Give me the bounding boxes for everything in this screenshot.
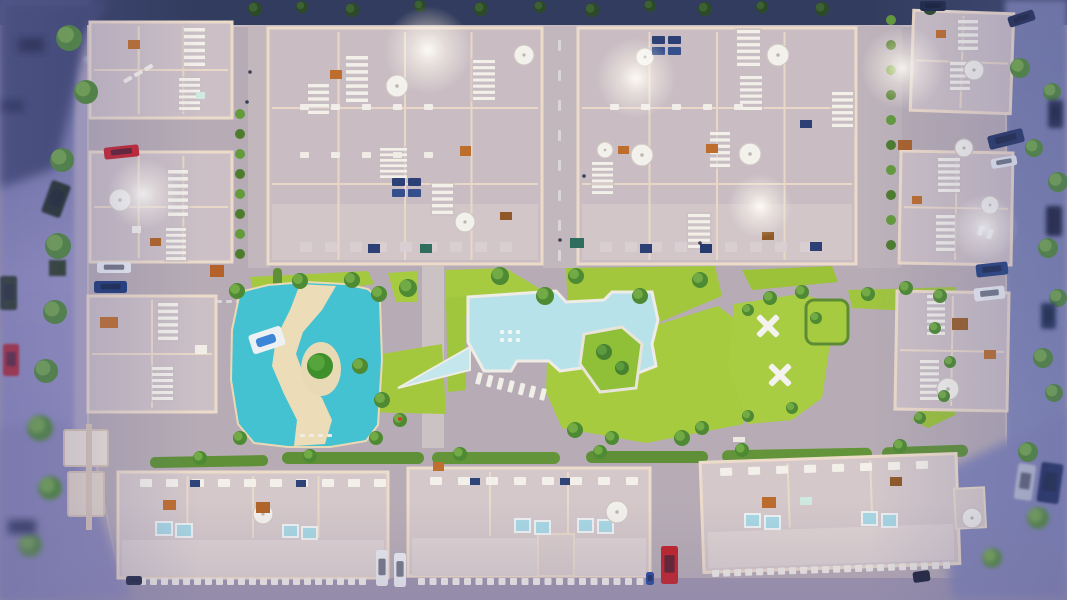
- road-tree: [815, 2, 829, 16]
- terrace-pool: [420, 244, 432, 253]
- park-tree: [374, 392, 390, 408]
- road-tree: [345, 3, 359, 17]
- road-tree: [698, 2, 712, 16]
- solar-panel: [368, 244, 380, 253]
- pergola: [430, 182, 455, 216]
- park-tree: [399, 279, 417, 297]
- park-tree: [692, 272, 708, 288]
- road-tree: [644, 0, 656, 12]
- walkway: [543, 26, 579, 268]
- patio-furniture: [433, 462, 444, 471]
- patio-furniture: [706, 144, 718, 153]
- park-tree: [742, 304, 754, 316]
- park-tree: [229, 283, 245, 299]
- window-dark: [560, 478, 570, 485]
- terrace-units: [300, 242, 512, 252]
- pedestrian: [698, 241, 702, 245]
- pedestrian: [558, 238, 562, 242]
- park-tree: [491, 267, 509, 285]
- hedge-tree: [303, 449, 317, 463]
- patio-umbrella: [597, 142, 613, 158]
- hedge-tree: [593, 445, 607, 459]
- park-tree: [369, 431, 383, 445]
- pool-steps: [500, 330, 520, 334]
- park-tree: [292, 273, 308, 289]
- solar-panel: [700, 244, 712, 253]
- patio-umbrella: [514, 45, 534, 65]
- patio-furniture: [618, 146, 629, 154]
- park-bench: [733, 437, 745, 442]
- road-tree: [474, 2, 488, 16]
- patio-furniture: [500, 212, 512, 220]
- park-tree: [233, 431, 247, 445]
- park-tree: [763, 291, 777, 305]
- pergola: [306, 82, 331, 116]
- road-tree: [756, 1, 768, 13]
- park-tree: [536, 287, 554, 305]
- pedestrian: [245, 100, 249, 104]
- storage-box: [210, 265, 224, 277]
- aerial-render-of-residential-complex: [0, 0, 1067, 600]
- park-tree: [674, 430, 690, 446]
- terrace-pool: [570, 238, 584, 248]
- terrace-light: [596, 38, 676, 118]
- pergola: [830, 90, 855, 129]
- dusk-overlay-bottom: [0, 500, 1067, 600]
- park-tree: [568, 268, 584, 284]
- hedge-tree: [735, 443, 749, 457]
- park-tree: [786, 402, 798, 414]
- patio-umbrella: [739, 143, 761, 165]
- hedge-tree: [453, 447, 467, 461]
- solar-panel: [810, 242, 822, 251]
- pergola: [590, 160, 615, 196]
- solar-panel: [640, 244, 652, 253]
- park-tree: [344, 272, 360, 288]
- solar-panel: [800, 120, 812, 128]
- patio-furniture: [330, 70, 342, 79]
- park-tree: [810, 312, 822, 324]
- aerial-view-svg: [0, 0, 1067, 600]
- road-tree: [248, 2, 262, 16]
- park-tree: [371, 286, 387, 302]
- hedge: [432, 452, 560, 464]
- pergola: [378, 146, 409, 180]
- terrace-light: [384, 6, 472, 94]
- park-tree: [632, 288, 648, 304]
- pergola: [471, 58, 497, 102]
- patio-umbrella: [631, 144, 653, 166]
- island-palms: [307, 353, 333, 379]
- park-tree: [352, 358, 368, 374]
- window-dark: [470, 478, 480, 485]
- figure-red: [398, 417, 402, 421]
- pedestrian: [582, 174, 586, 178]
- lawn: [446, 296, 466, 392]
- patio-furniture: [460, 146, 471, 156]
- road-tree: [534, 1, 546, 13]
- window-dark: [296, 480, 306, 487]
- park-tree: [605, 431, 619, 445]
- patio-umbrella: [455, 212, 475, 232]
- park-tree: [795, 285, 809, 299]
- park-tree: [695, 421, 709, 435]
- pergola: [344, 54, 370, 104]
- island-shrub: [596, 344, 612, 360]
- scene-root: [0, 0, 1067, 600]
- road-tree: [296, 1, 308, 13]
- pedestrian: [248, 70, 252, 74]
- pool-steps: [500, 338, 520, 342]
- terrace-light: [728, 174, 792, 238]
- island-shrub: [615, 361, 629, 375]
- patio-umbrella: [767, 44, 789, 66]
- park-tree: [742, 410, 754, 422]
- road-tree: [585, 3, 599, 17]
- pergola: [735, 28, 762, 68]
- park-tree: [567, 422, 583, 438]
